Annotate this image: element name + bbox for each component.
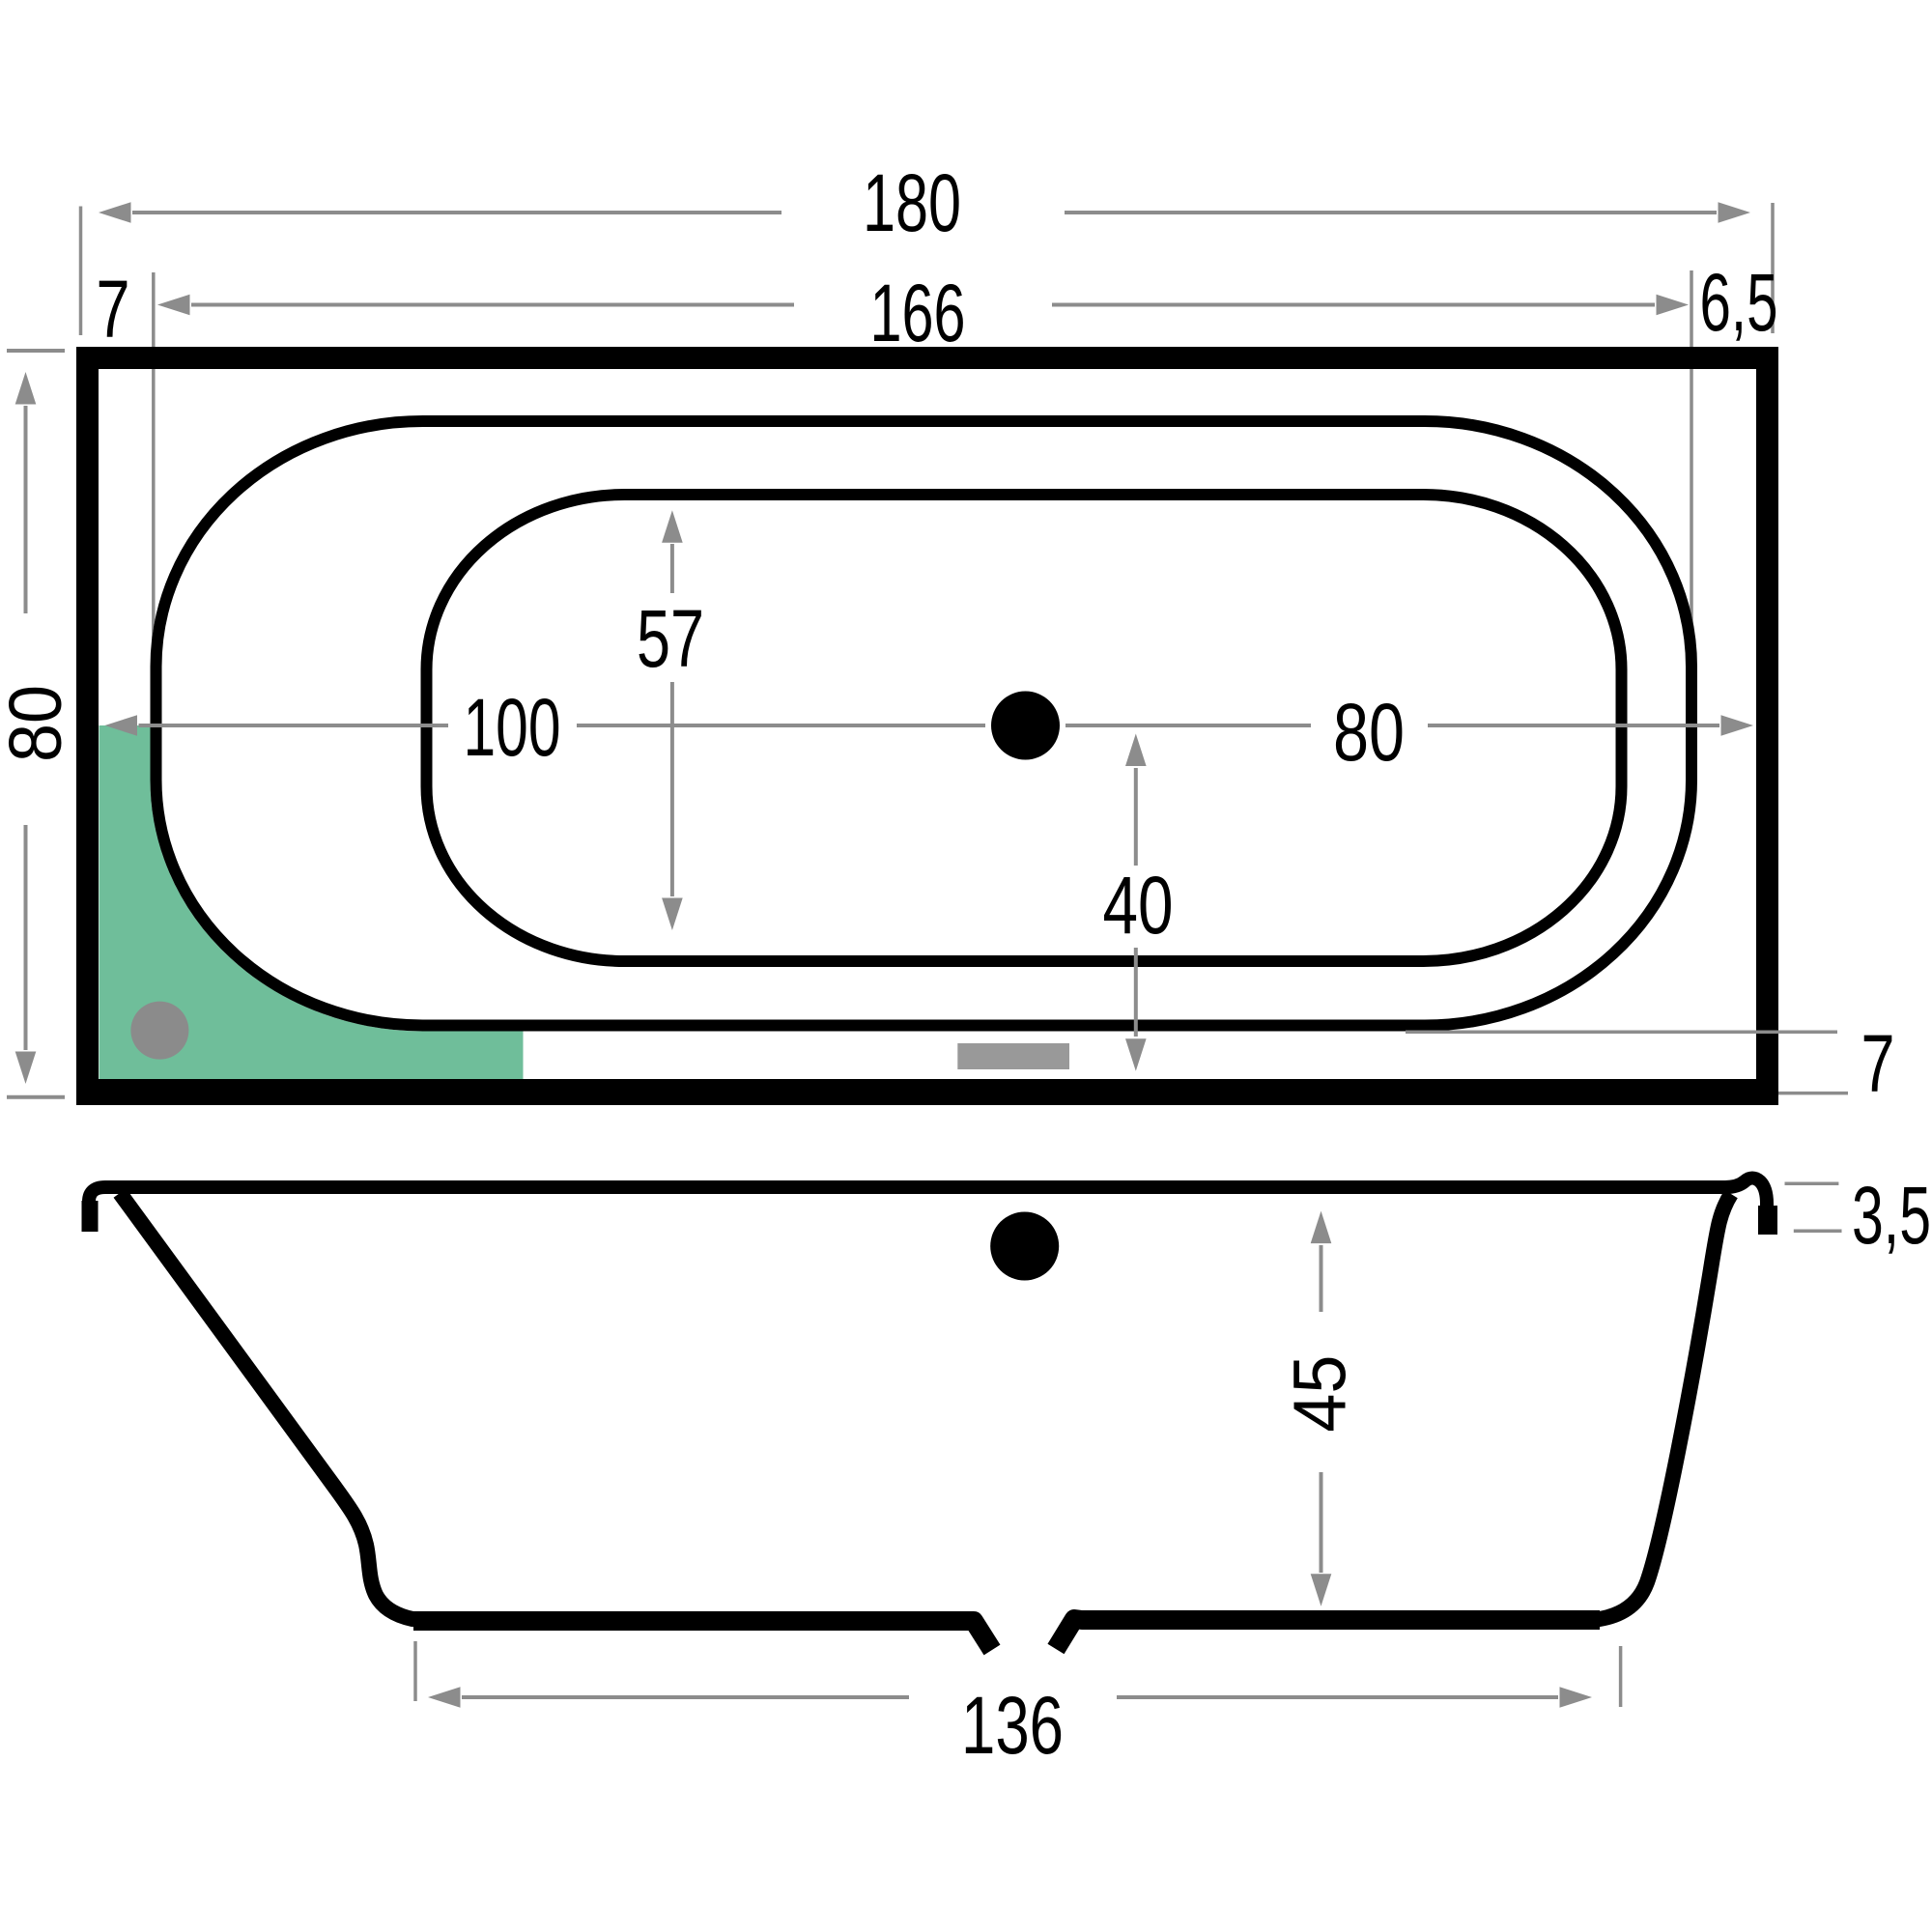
svg-text:7: 7 xyxy=(1861,1018,1895,1109)
svg-text:80: 80 xyxy=(1333,687,1405,778)
svg-text:6,5: 6,5 xyxy=(1700,257,1778,348)
svg-text:166: 166 xyxy=(870,268,966,358)
svg-text:136: 136 xyxy=(961,1680,1064,1771)
svg-text:40: 40 xyxy=(1103,860,1174,951)
svg-text:45: 45 xyxy=(1279,1355,1362,1433)
svg-text:7: 7 xyxy=(97,264,130,355)
svg-text:180: 180 xyxy=(863,157,961,248)
svg-text:3,5: 3,5 xyxy=(1852,1170,1931,1261)
svg-text:57: 57 xyxy=(637,593,704,684)
svg-text:80: 80 xyxy=(0,685,77,762)
svg-text:100: 100 xyxy=(464,682,561,773)
